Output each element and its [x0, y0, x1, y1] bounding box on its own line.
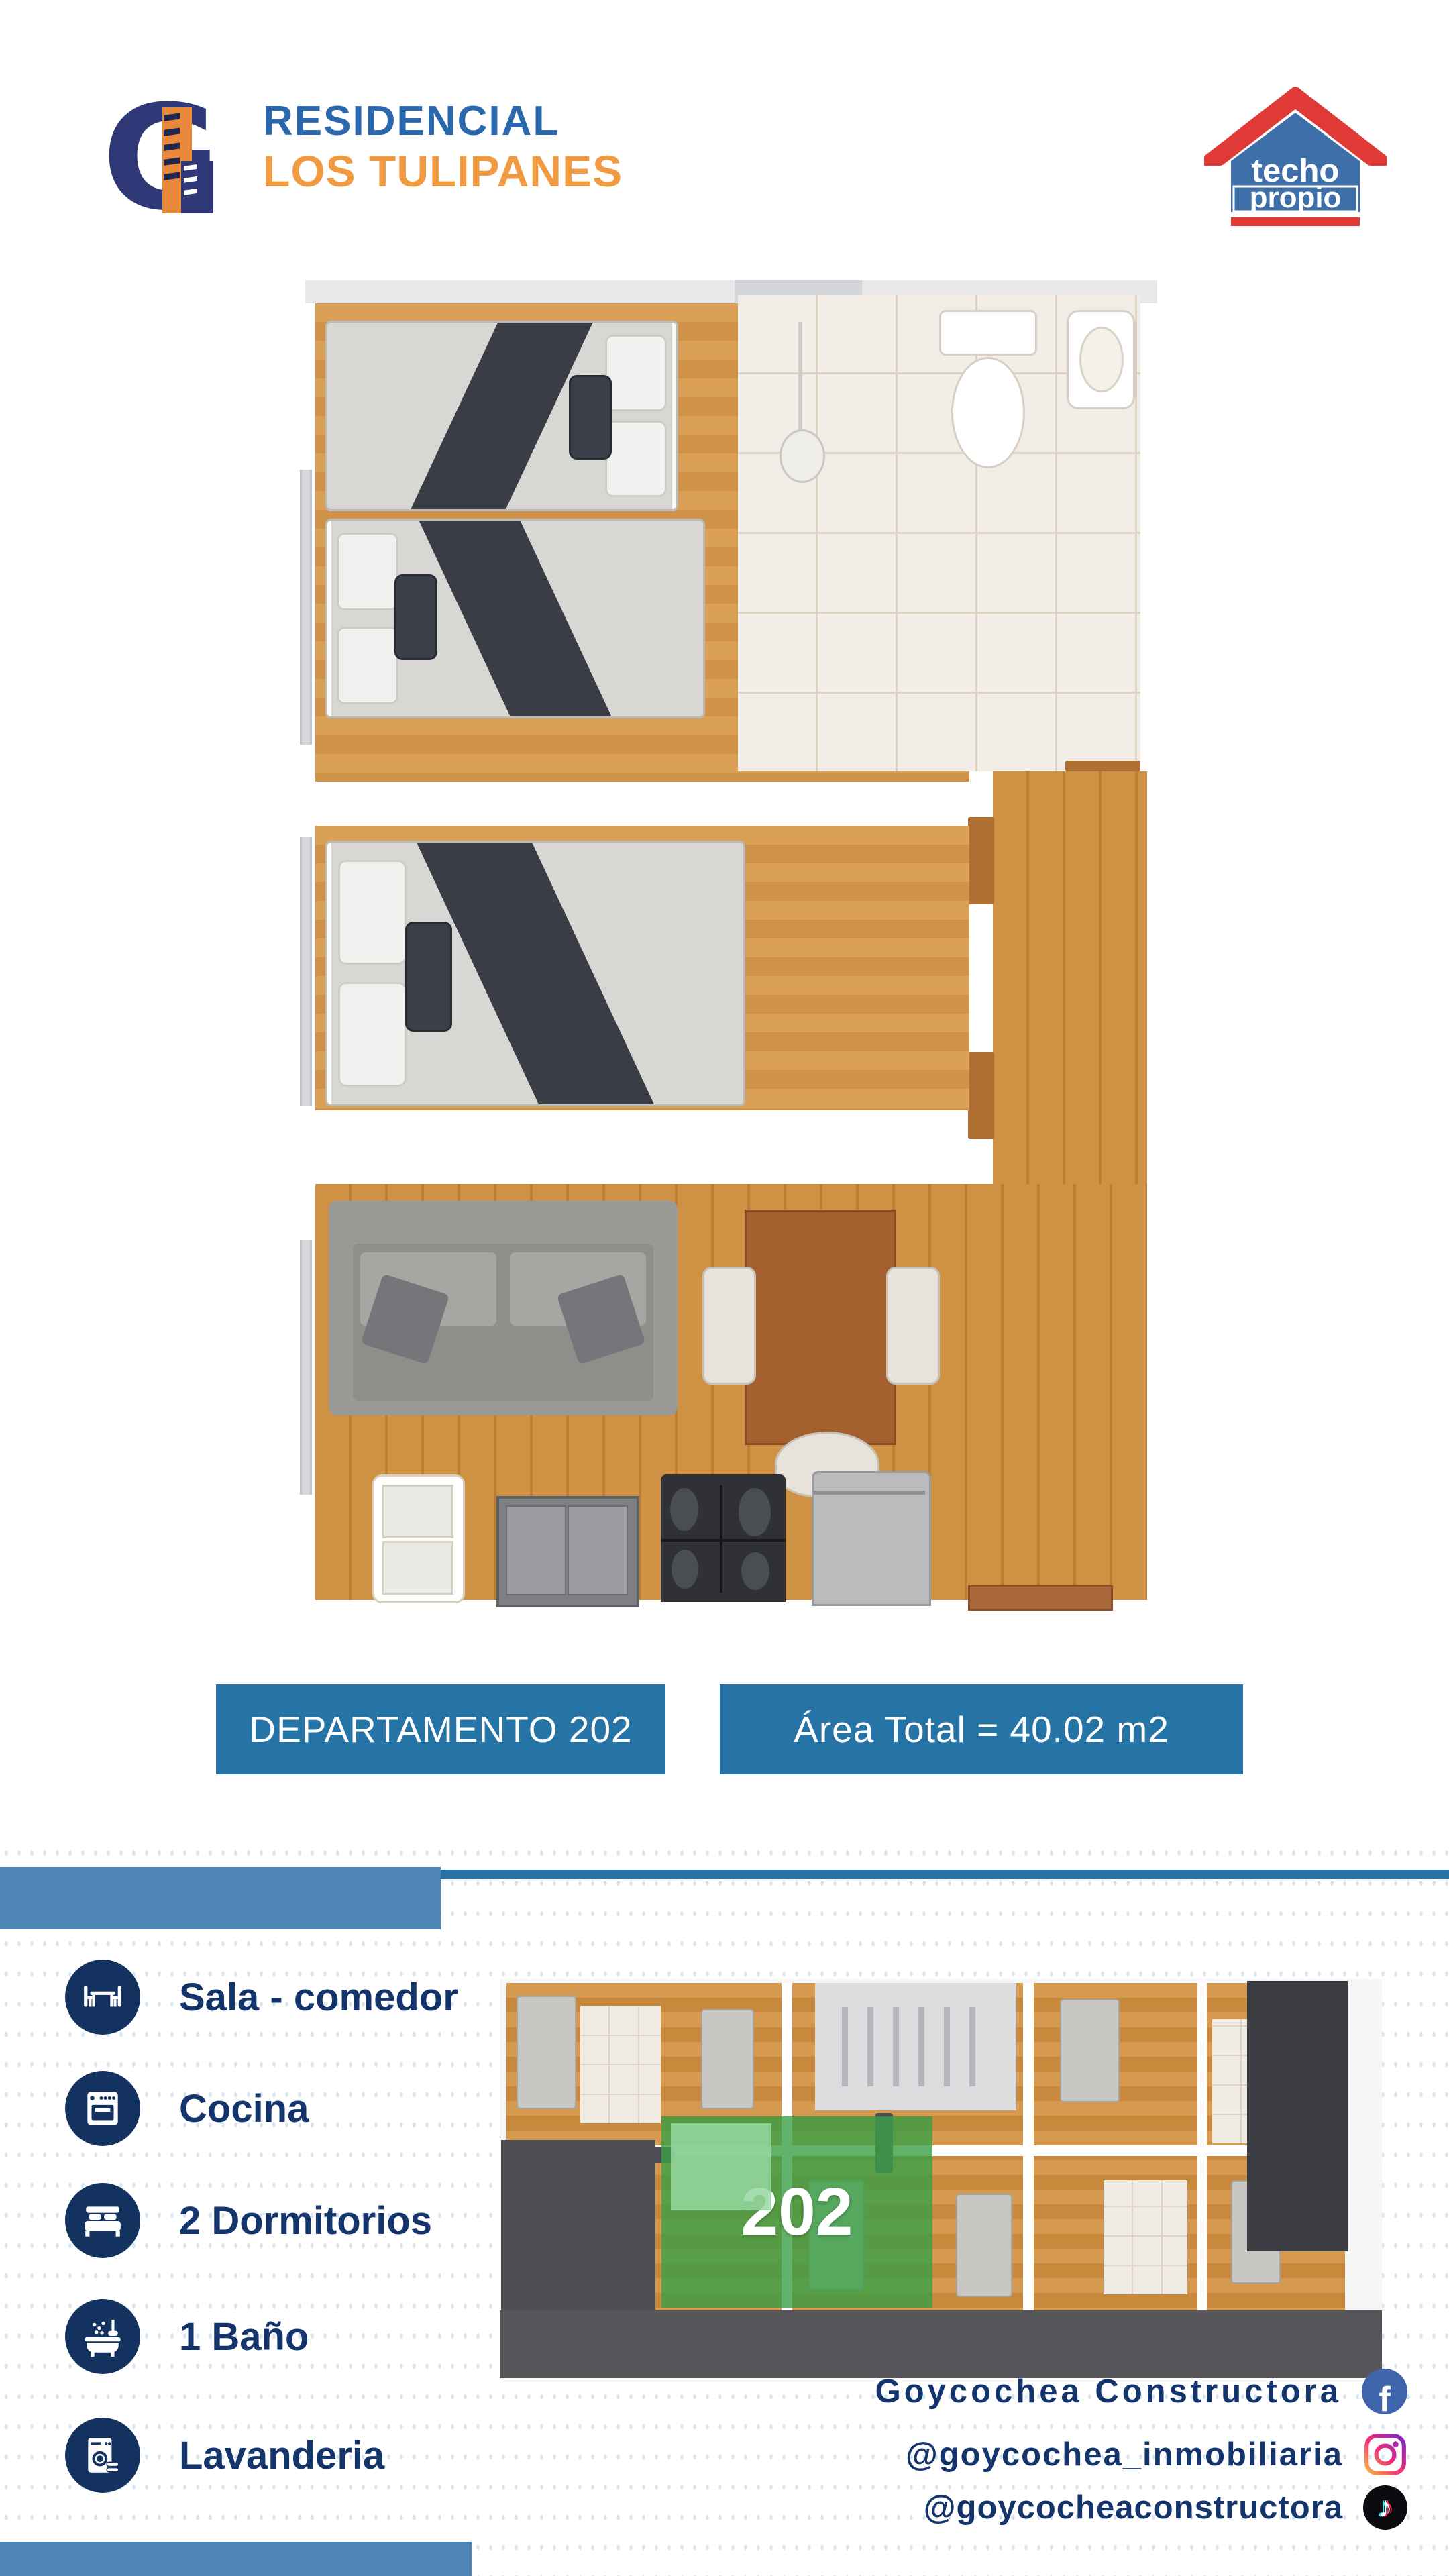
- dining-table: [745, 1210, 896, 1445]
- exterior-left: [501, 2140, 655, 2310]
- dorm2-door: [968, 1052, 994, 1139]
- sofa: [329, 1201, 678, 1415]
- instagram-handle: @goycochea_inmobiliaria: [906, 2436, 1343, 2473]
- title-line-residencial: RESIDENCIAL: [263, 101, 623, 142]
- building-floorplan: 202: [500, 1979, 1382, 2378]
- tiktok-glyph: ♪: [1378, 2491, 1393, 2524]
- exterior-right: [1247, 1981, 1348, 2251]
- area-banner-label: Área Total = 40.02 m2: [794, 1708, 1169, 1751]
- dorm1-door: [968, 817, 994, 904]
- window-living: [300, 1240, 312, 1495]
- unit-banner-label: DEPARTAMENTO 202: [249, 1708, 632, 1751]
- dining-table-icon: [65, 1960, 140, 2035]
- amenity-label: Cocina: [179, 2086, 309, 2131]
- entrance-mat: [968, 1585, 1113, 1611]
- tiktok-icon[interactable]: ♪: [1363, 2485, 1407, 2530]
- bed-single-2: [325, 519, 705, 718]
- amenity-label: 2 Dormitorios: [179, 2198, 432, 2243]
- highlighted-unit-202: 202: [661, 2116, 932, 2308]
- bathroom-floor: [738, 295, 1140, 771]
- sink: [1067, 310, 1135, 409]
- goycochea-logo: G: [106, 89, 223, 226]
- window-bedroom1: [300, 470, 312, 745]
- amenity-dormitorios: 2 Dormitorios: [65, 2183, 432, 2258]
- bed-icon: [65, 2183, 140, 2258]
- shower-icon: [798, 322, 802, 436]
- washing-machine-icon: [65, 2418, 140, 2493]
- bed-double: [325, 841, 745, 1106]
- amenity-label: 1 Baño: [179, 2314, 309, 2359]
- facebook-handle: Goycochea Constructora: [875, 2373, 1342, 2410]
- stove-icon: [65, 2071, 140, 2146]
- area-banner: Área Total = 40.02 m2: [720, 1684, 1243, 1774]
- divider-box: [0, 1867, 441, 1929]
- social-facebook[interactable]: Goycochea Constructora f: [875, 2368, 1407, 2415]
- divider-bar: [429, 1870, 1449, 1879]
- wall-dorm2-living: [305, 1110, 969, 1184]
- stove: [661, 1474, 786, 1602]
- social-tiktok[interactable]: @goycocheaconstructora ♪: [924, 2484, 1407, 2531]
- window-bedroom2: [300, 837, 312, 1106]
- amenity-label: Lavanderia: [179, 2433, 384, 2478]
- bottom-section: Sala - comedor Cocina: [0, 1838, 1449, 2576]
- toilet-tank: [939, 310, 1037, 356]
- kitchen-sink: [372, 1474, 465, 1603]
- title-line-los-tulipanes: LOS TULIPANES: [263, 149, 623, 193]
- amenity-sala-comedor: Sala - comedor: [65, 1960, 458, 2035]
- amenity-cocina: Cocina: [65, 2071, 309, 2146]
- instagram-icon[interactable]: [1363, 2432, 1407, 2477]
- bathtub-icon: [65, 2299, 140, 2374]
- propio-word: propio: [1250, 181, 1342, 214]
- stair-core: [815, 1983, 1016, 2110]
- amenity-bano: 1 Baño: [65, 2299, 309, 2374]
- bathroom-door: [1065, 761, 1140, 771]
- facebook-icon[interactable]: f: [1362, 2369, 1407, 2414]
- dining-chair-right: [886, 1267, 940, 1385]
- amenity-lavanderia: Lavanderia: [65, 2418, 384, 2493]
- tiktok-handle: @goycocheaconstructora: [924, 2489, 1343, 2526]
- facebook-glyph: f: [1379, 2379, 1390, 2414]
- fridge: [812, 1471, 931, 1606]
- dining-chair-left: [702, 1267, 756, 1385]
- wall-dorm1-dorm2: [305, 782, 969, 826]
- social-instagram[interactable]: @goycochea_inmobiliaria: [906, 2431, 1407, 2478]
- techo-propio-logo: techo propio: [1204, 86, 1387, 228]
- kitchen-cabinet: [496, 1496, 639, 1607]
- base-bar: [1231, 217, 1360, 226]
- shower-head: [780, 429, 825, 483]
- apartment-floorplan: [305, 280, 1157, 1612]
- real-estate-flyer: G RESIDENCIAL LOS TULIPANES techo propio: [0, 0, 1449, 2576]
- bed-single-1: [325, 321, 678, 511]
- project-title: RESIDENCIAL LOS TULIPANES: [263, 101, 623, 193]
- toilet-bowl: [951, 357, 1025, 468]
- amenity-label: Sala - comedor: [179, 1975, 458, 2020]
- footer-accent-box: [0, 2542, 472, 2576]
- unit-banner: DEPARTAMENTO 202: [216, 1684, 665, 1774]
- hallway-floor: [993, 771, 1147, 1186]
